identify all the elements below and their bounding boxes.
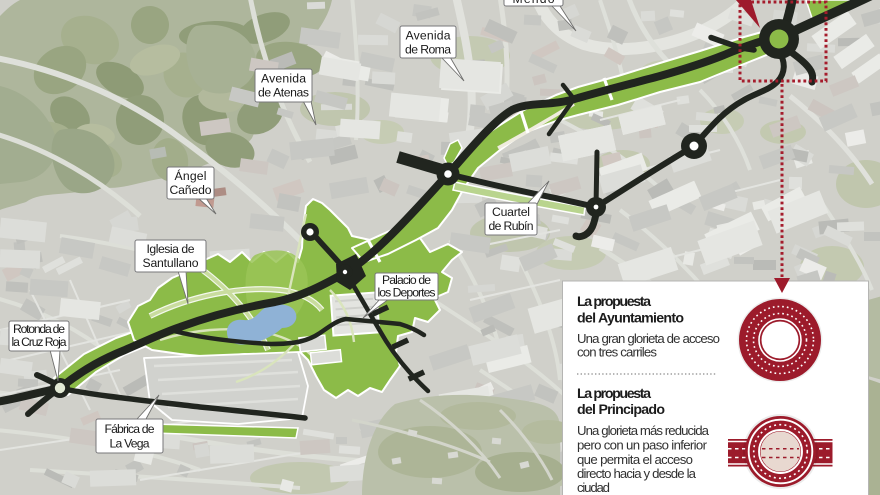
svg-text:Cañedo: Cañedo <box>170 183 212 197</box>
svg-text:Avenida: Avenida <box>406 29 451 43</box>
svg-text:de Atenas: de Atenas <box>258 86 309 100</box>
svg-text:Cuartel: Cuartel <box>492 205 530 219</box>
svg-text:Iglesia de: Iglesia de <box>147 242 195 256</box>
svg-text:Una glorieta más reducida: Una glorieta más reducida <box>577 423 710 438</box>
svg-text:La propuesta: La propuesta <box>577 294 651 310</box>
svg-text:pero con un paso inferior: pero con un paso inferior <box>577 438 708 453</box>
svg-text:La propuesta: La propuesta <box>577 386 651 402</box>
svg-text:Rotonda de: Rotonda de <box>13 322 65 336</box>
svg-text:ciudad: ciudad <box>577 480 610 495</box>
svg-text:del Principado: del Principado <box>577 402 665 418</box>
svg-text:la Cruz Roja: la Cruz Roja <box>12 335 67 349</box>
svg-text:que permita el acceso: que permita el acceso <box>577 452 693 467</box>
svg-text:con tres carriles: con tres carriles <box>577 345 657 360</box>
svg-text:los Deportes: los Deportes <box>378 286 436 300</box>
svg-text:Mendo: Mendo <box>513 0 555 6</box>
svg-text:Santullano: Santullano <box>143 256 199 270</box>
svg-text:La Vega: La Vega <box>110 437 150 451</box>
svg-text:de Roma: de Roma <box>405 43 451 57</box>
svg-text:Fábrica de: Fábrica de <box>105 422 155 436</box>
svg-text:directo hacia y desde la: directo hacia y desde la <box>577 466 697 481</box>
svg-text:Avenida: Avenida <box>261 72 306 86</box>
svg-text:del Ayuntamiento: del Ayuntamiento <box>577 311 684 327</box>
svg-text:Ángel: Ángel <box>175 168 207 183</box>
svg-text:de Rubín: de Rubín <box>489 219 534 233</box>
